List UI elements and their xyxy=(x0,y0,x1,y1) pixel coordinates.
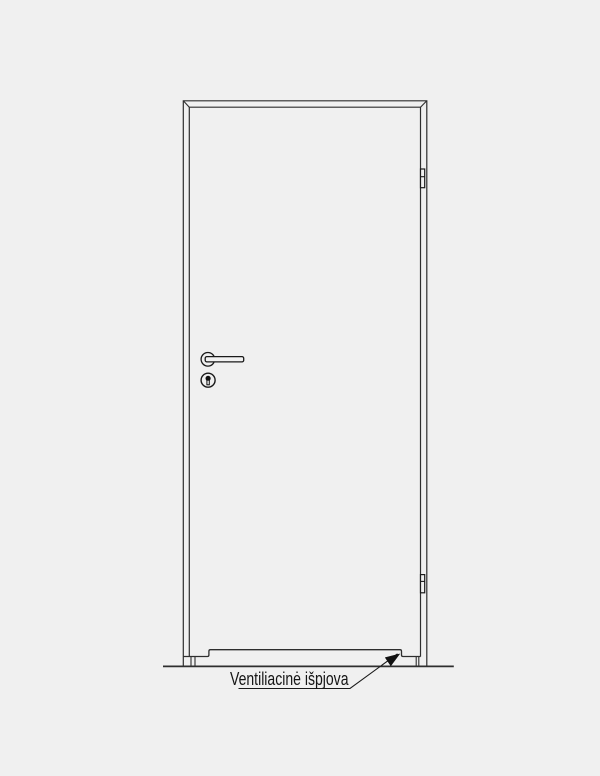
svg-text:Ventiliacinė išpjova: Ventiliacinė išpjova xyxy=(230,669,349,689)
